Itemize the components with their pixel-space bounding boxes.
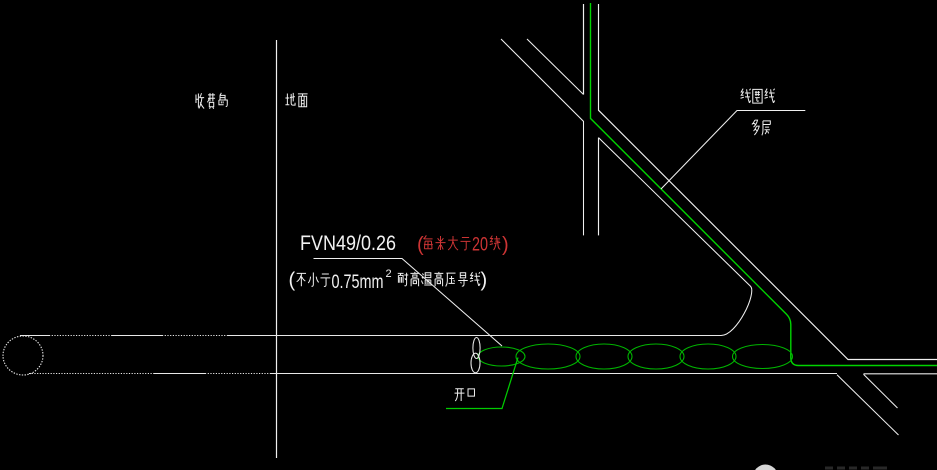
- svg-text:20: 20: [472, 235, 488, 256]
- svg-text:2: 2: [386, 268, 392, 280]
- svg-text:): ): [481, 270, 488, 292]
- svg-text:): ): [502, 234, 509, 256]
- svg-text:(: (: [289, 270, 296, 292]
- svg-text:(: (: [417, 234, 424, 256]
- svg-text:0.75mm: 0.75mm: [332, 272, 384, 293]
- svg-text:FVN49/0.26: FVN49/0.26: [300, 232, 396, 255]
